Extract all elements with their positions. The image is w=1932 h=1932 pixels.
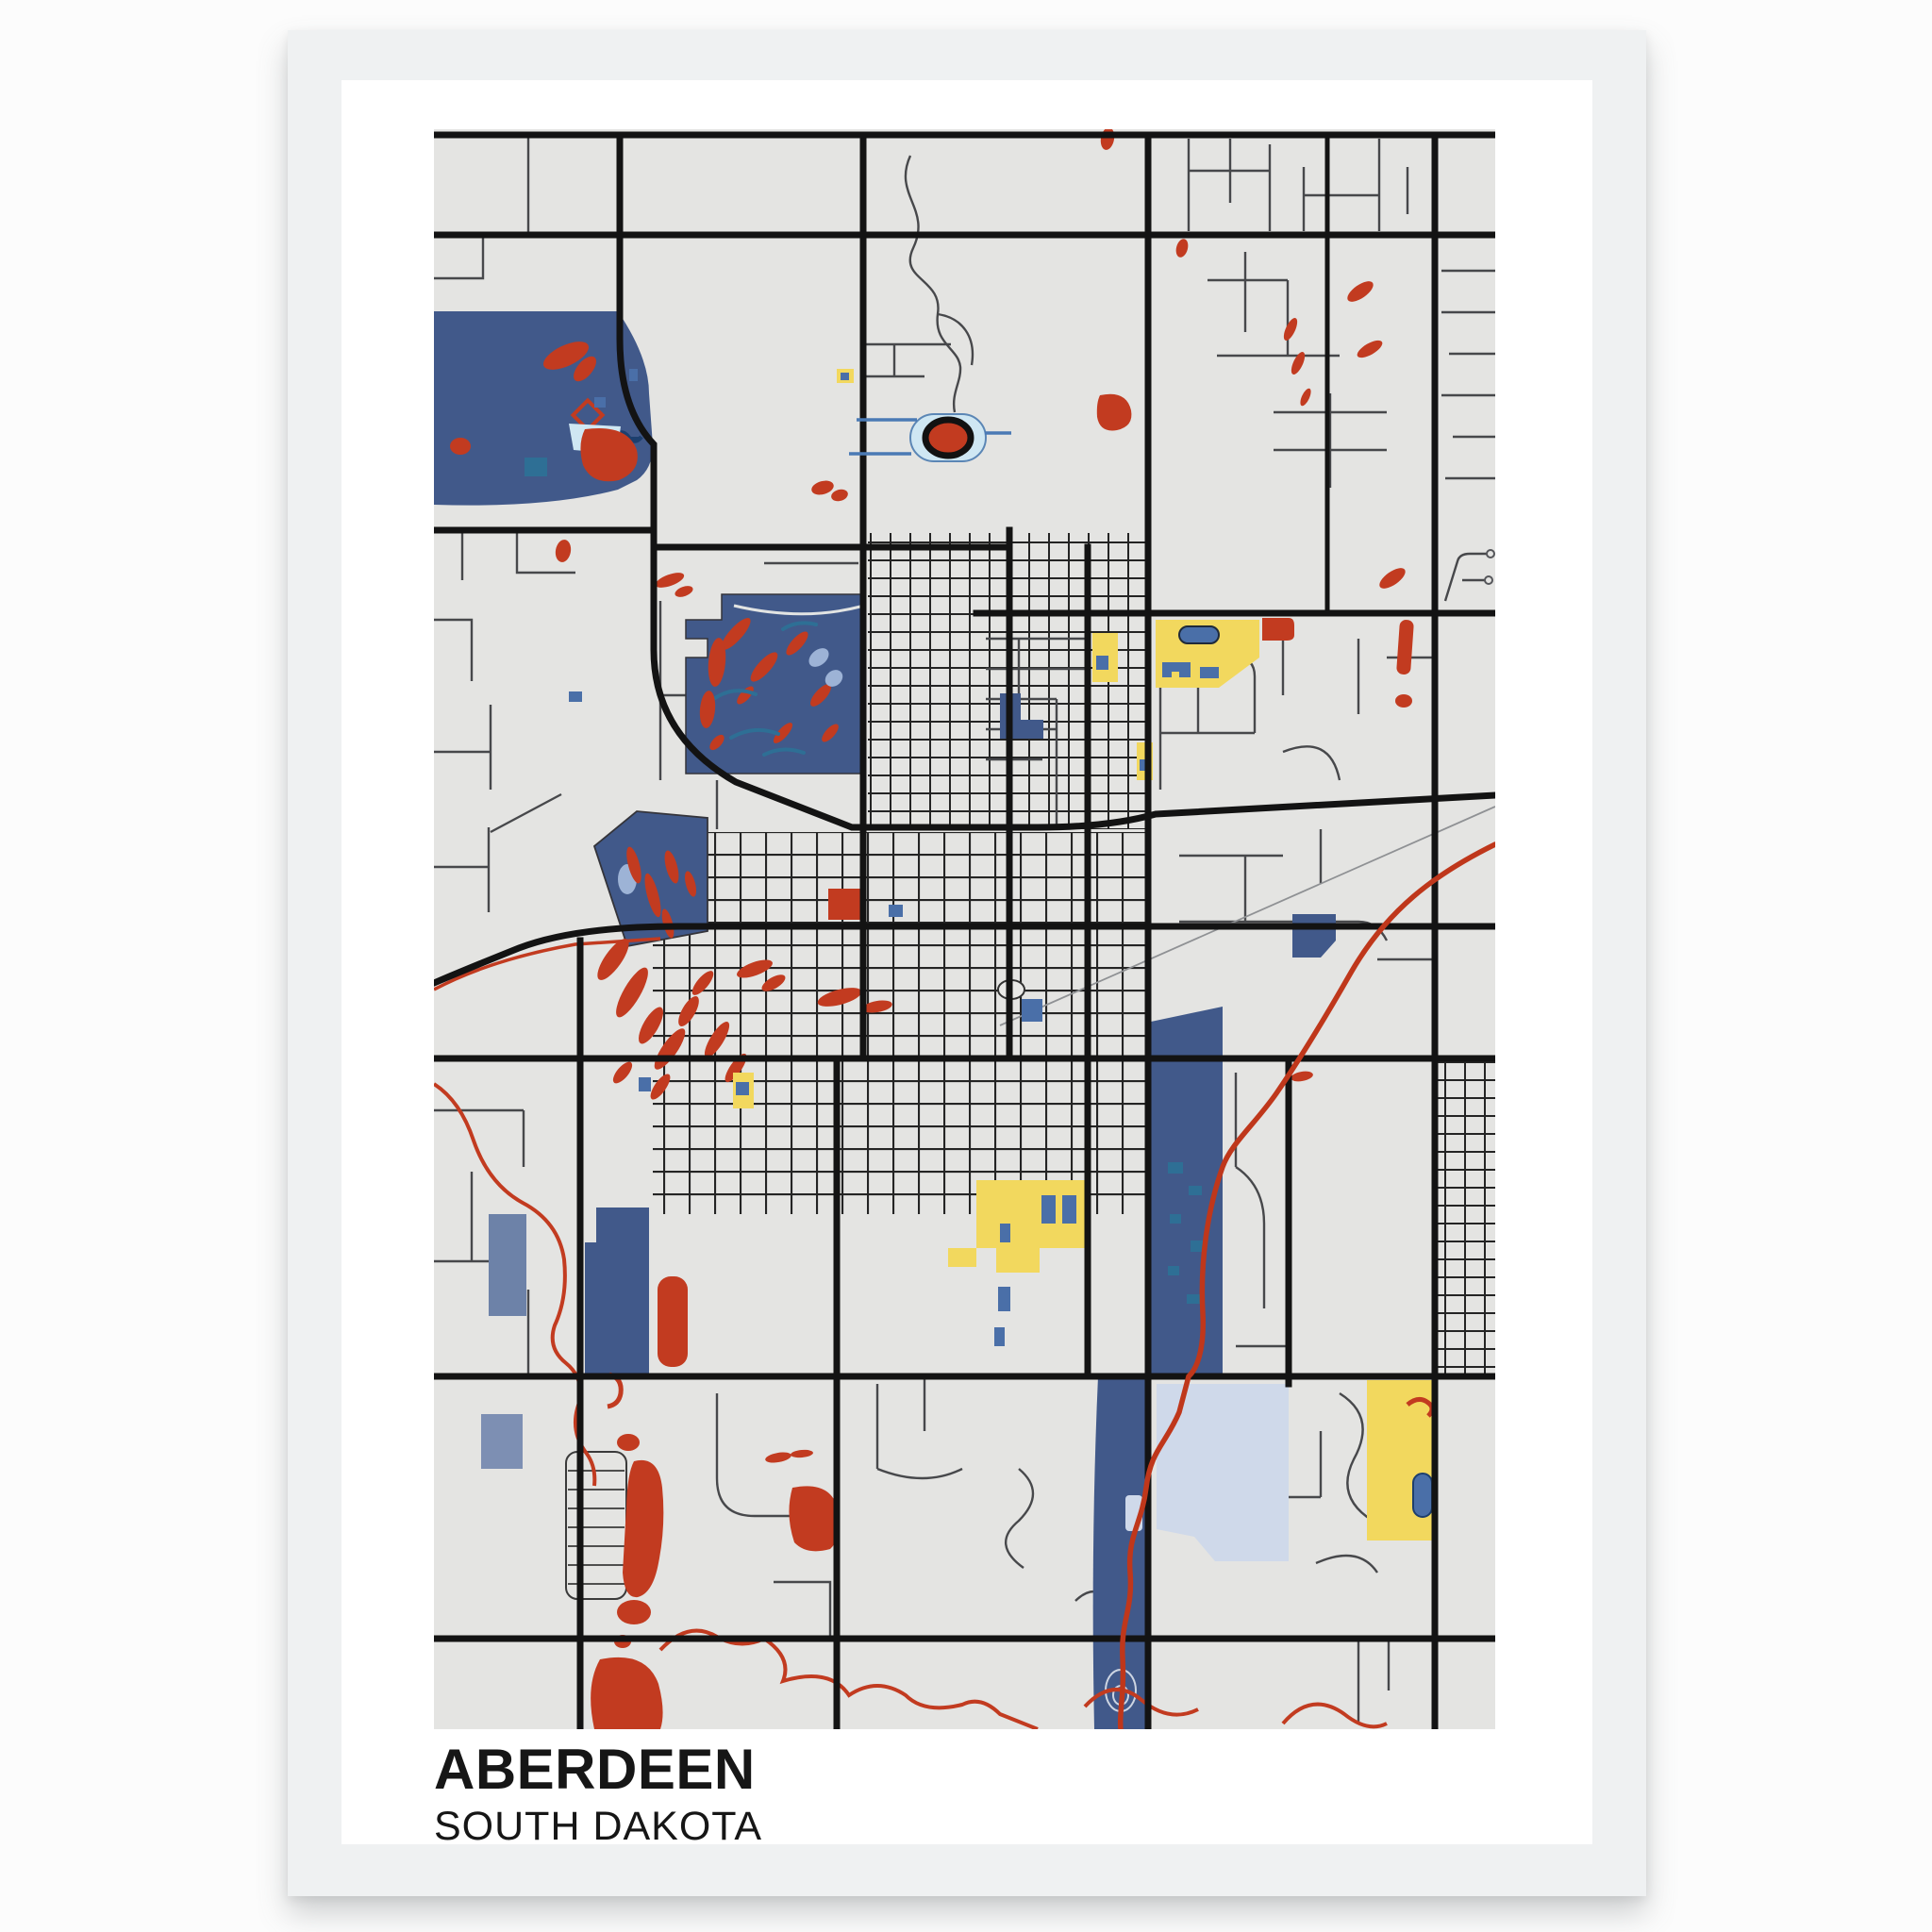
- poster-caption: ABERDEEN SOUTH DAKOTA: [434, 1741, 762, 1847]
- yellow-field-bottom-right: [1367, 1380, 1437, 1541]
- map-svg: [434, 129, 1495, 1729]
- poster-frame: ABERDEEN SOUTH DAKOTA: [288, 30, 1646, 1896]
- poster-mat: ABERDEEN SOUTH DAKOTA: [341, 80, 1592, 1844]
- city-title: ABERDEEN: [434, 1741, 762, 1798]
- city-map-artwork: [434, 129, 1495, 1729]
- state-subtitle: SOUTH DAKOTA: [434, 1807, 762, 1847]
